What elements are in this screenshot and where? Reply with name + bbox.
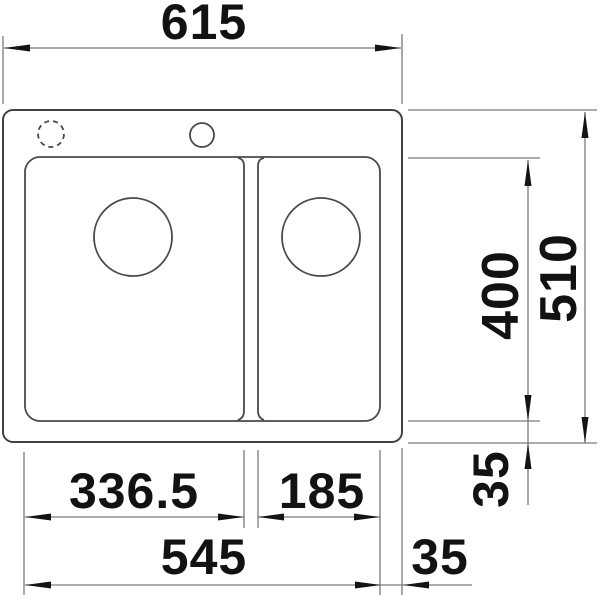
arrowhead <box>218 514 244 521</box>
arrowhead <box>525 160 532 186</box>
arrowhead <box>4 45 30 52</box>
dim-label-secondary-basin-width: 185 <box>279 463 365 519</box>
technical-drawing-page: 615 400 510 35 <box>0 0 600 600</box>
main-basin-drain <box>94 198 172 276</box>
tap-hole <box>190 123 214 147</box>
arrowhead <box>355 582 381 589</box>
arrowhead <box>582 112 589 138</box>
arrowhead <box>525 395 532 421</box>
dim-label-main-basin-width: 336.5 <box>69 463 199 519</box>
basin-divider-right-edge <box>258 158 264 420</box>
arrowhead <box>375 45 401 52</box>
dim-label-overall-width: 615 <box>161 0 247 50</box>
sink-rim-outline <box>3 110 402 442</box>
dim-label-overall-depth: 510 <box>530 233 588 323</box>
basin-boundary <box>25 157 380 421</box>
arrowhead <box>525 443 532 469</box>
basin-divider-left-edge <box>238 158 244 420</box>
arrowhead <box>25 582 51 589</box>
dim-label-bottom-edge-offset: 35 <box>463 450 519 508</box>
dim-right-side: 400 510 35 <box>408 110 597 508</box>
dim-label-basins-overall-width: 545 <box>161 529 247 585</box>
secondary-basin-drain <box>282 198 360 276</box>
dim-bottom: 336.5 185 545 35 <box>24 448 472 595</box>
dim-overall-width: 615 <box>3 0 402 104</box>
dim-label-right-edge-offset: 35 <box>411 529 469 585</box>
sink-dimension-drawing: 615 400 510 35 <box>0 0 600 600</box>
arrowhead <box>582 417 589 443</box>
optional-tap-hole-dashed <box>38 121 64 147</box>
dim-label-basin-depth: 400 <box>472 250 530 340</box>
sink-body <box>3 110 402 442</box>
arrowhead <box>25 514 51 521</box>
